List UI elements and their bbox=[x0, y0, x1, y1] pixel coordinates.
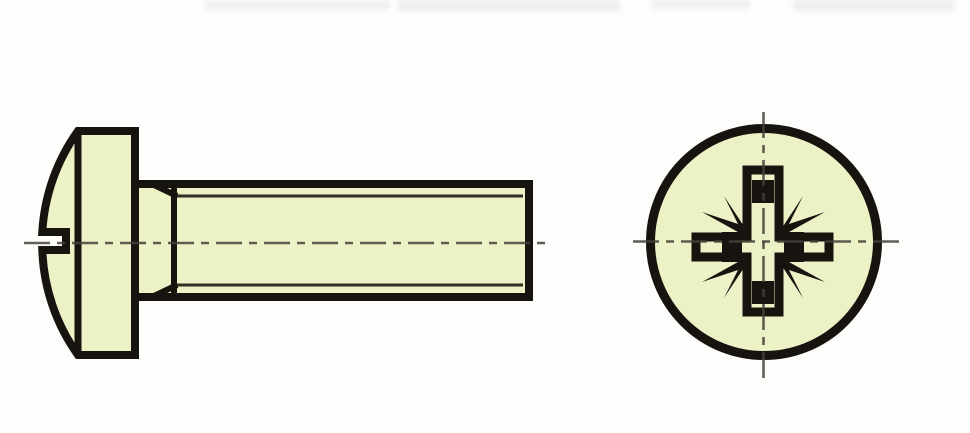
screw-side-view bbox=[24, 131, 548, 355]
threaded-shank bbox=[135, 184, 529, 297]
recess-tip-block-left bbox=[722, 232, 742, 262]
screw-technical-drawing bbox=[0, 0, 970, 433]
screw-front-view bbox=[633, 112, 906, 378]
recess-tip-block-right bbox=[784, 232, 804, 262]
technical-drawing-canvas bbox=[0, 0, 970, 433]
